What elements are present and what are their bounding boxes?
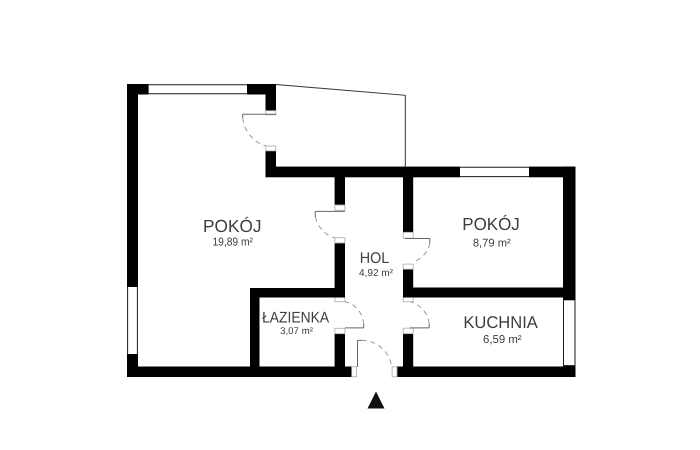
svg-text:ŁAZIENKA: ŁAZIENKA (262, 309, 330, 326)
svg-text:3,07 m²: 3,07 m² (280, 326, 314, 337)
svg-text:19,89 m²: 19,89 m² (212, 237, 253, 249)
svg-text:HOL: HOL (360, 250, 390, 267)
svg-text:8,79 m²: 8,79 m² (473, 238, 511, 250)
svg-text:6,59 m²: 6,59 m² (483, 334, 522, 346)
svg-text:KUCHNIA: KUCHNIA (463, 313, 538, 332)
svg-text:4,92 m²: 4,92 m² (359, 268, 394, 279)
svg-text:POKÓJ: POKÓJ (462, 214, 520, 234)
svg-text:POKÓJ: POKÓJ (203, 216, 262, 236)
